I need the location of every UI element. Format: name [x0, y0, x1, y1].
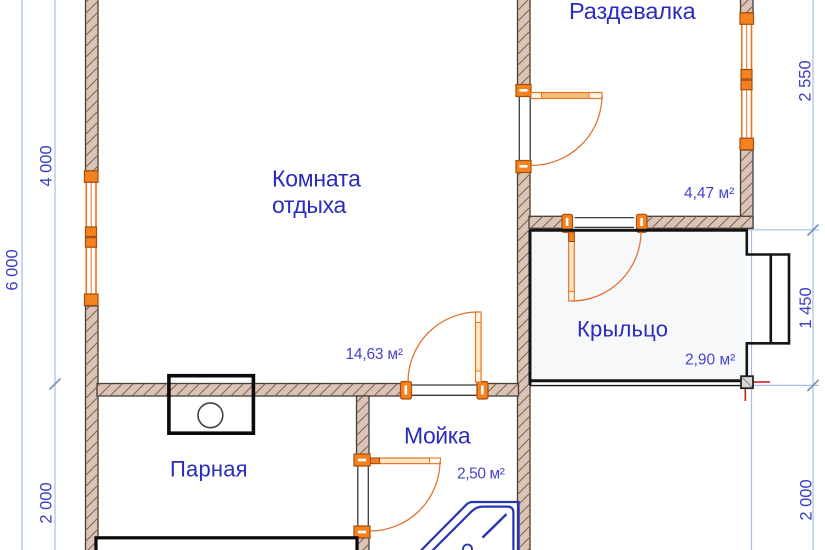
svg-text:2 000: 2 000: [797, 479, 815, 520]
svg-text:2,50 м²: 2,50 м²: [457, 466, 505, 483]
svg-text:Парная: Парная: [170, 457, 248, 482]
svg-text:Комната: Комната: [272, 166, 361, 192]
svg-text:6 000: 6 000: [3, 249, 21, 290]
svg-text:Раздевалка: Раздевалка: [569, 0, 697, 24]
svg-text:отдыха: отдыха: [272, 192, 347, 218]
svg-text:2 000: 2 000: [37, 482, 55, 523]
svg-text:2 550: 2 550: [796, 60, 814, 101]
svg-text:14,63 м²: 14,63 м²: [346, 346, 403, 363]
svg-text:2,90 м²: 2,90 м²: [685, 352, 735, 369]
svg-text:4 000: 4 000: [37, 145, 55, 186]
svg-text:1 450: 1 450: [797, 287, 815, 328]
svg-text:Крыльцо: Крыльцо: [577, 317, 668, 342]
svg-text:4,47 м²: 4,47 м²: [684, 185, 734, 202]
svg-text:Мойка: Мойка: [404, 423, 471, 449]
